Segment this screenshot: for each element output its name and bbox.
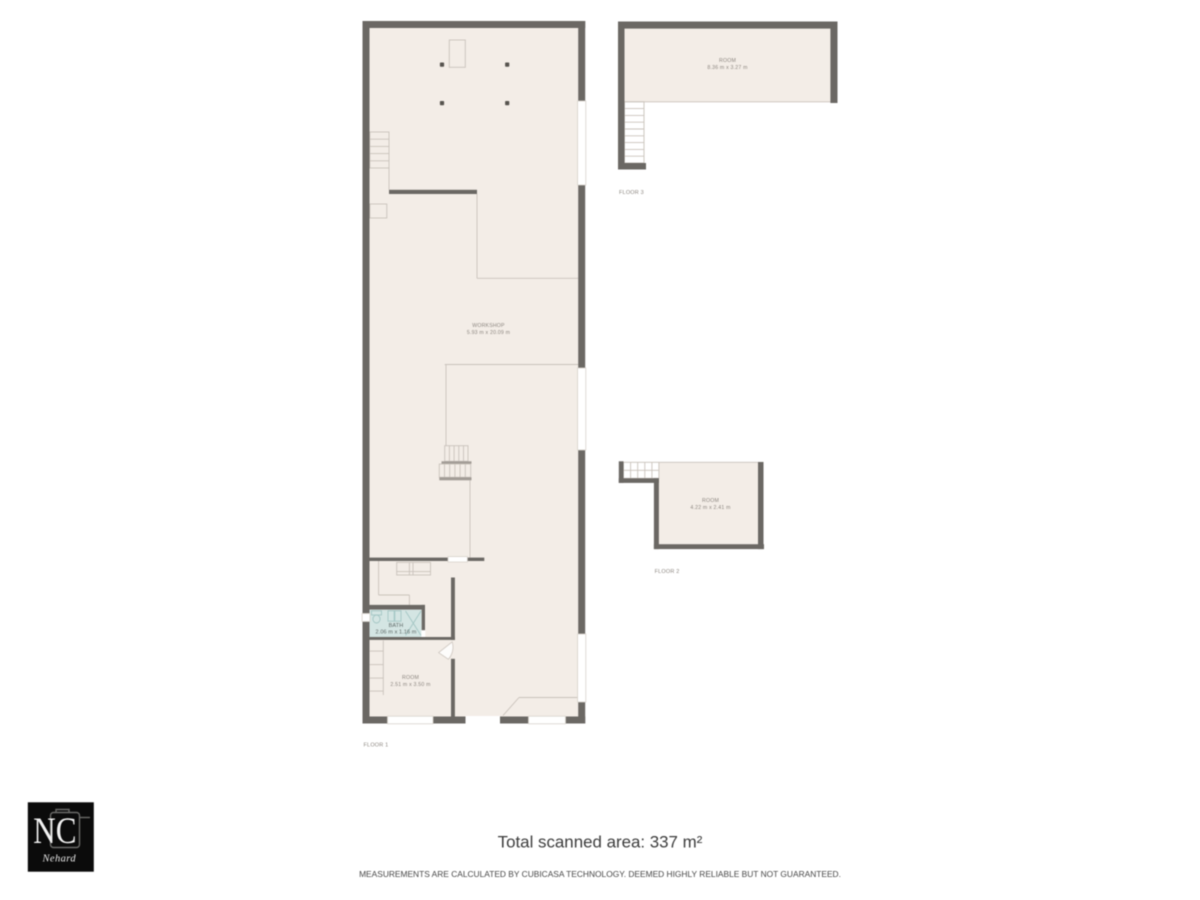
svg-text:ROOM: ROOM	[719, 58, 736, 64]
svg-text:2.06 m x 1.16 m: 2.06 m x 1.16 m	[376, 630, 417, 636]
svg-text:2.51 m x 3.50 m: 2.51 m x 3.50 m	[390, 682, 430, 688]
svg-text:NC: NC	[33, 812, 76, 852]
svg-text:8.36 m x 3.27 m: 8.36 m x 3.27 m	[707, 65, 747, 71]
svg-text:ROOM: ROOM	[702, 498, 719, 504]
svg-text:WORKSHOP: WORKSHOP	[472, 323, 505, 329]
svg-text:FLOOR 2: FLOOR 2	[655, 569, 680, 575]
svg-text:5.93 m x 20.09 m: 5.93 m x 20.09 m	[467, 330, 510, 336]
svg-text:ROOM: ROOM	[402, 675, 419, 681]
svg-text:Total scanned area: 337 m²: Total scanned area: 337 m²	[498, 833, 703, 852]
svg-text:FLOOR 3: FLOOR 3	[619, 190, 644, 196]
svg-text:BATH: BATH	[389, 623, 404, 629]
svg-text:4.22 m x 2.41 m: 4.22 m x 2.41 m	[690, 505, 730, 511]
svg-text:Nehard: Nehard	[42, 854, 77, 865]
svg-text:MEASUREMENTS ARE CALCULATED BY: MEASUREMENTS ARE CALCULATED BY CUBICASA …	[359, 869, 841, 879]
svg-text:FLOOR 1: FLOOR 1	[364, 743, 389, 749]
